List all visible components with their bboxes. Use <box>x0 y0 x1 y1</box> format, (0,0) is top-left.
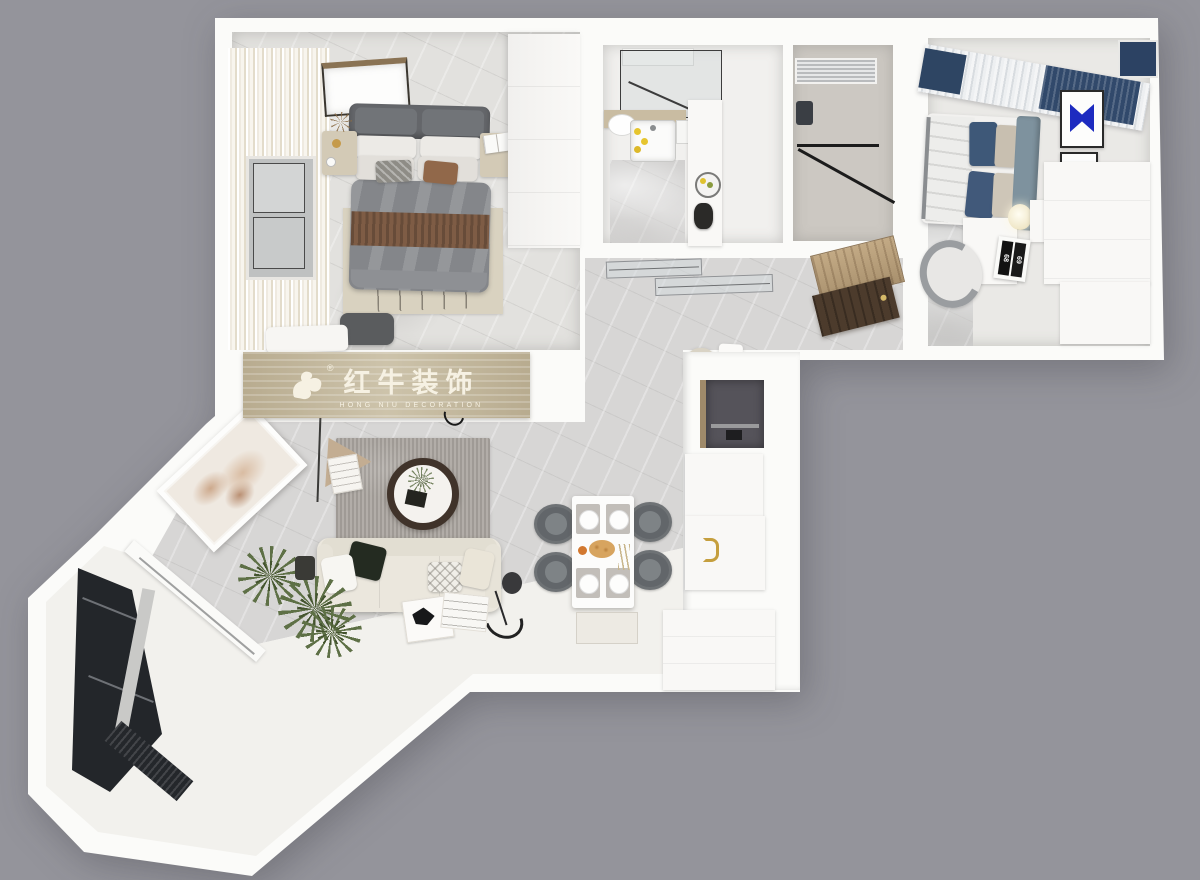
accent-pillow-checkered <box>375 160 412 184</box>
floorplan-render: 68 69 <box>0 0 1200 880</box>
dining-chair <box>628 502 672 542</box>
tv-soundbar <box>711 424 759 428</box>
bedroom2-lower-cabinet <box>1060 282 1150 344</box>
wall-art-blue-butterfly <box>1060 90 1104 148</box>
brand-logo-wall: ® 红牛装饰 HONG NIU DECORATION <box>243 352 530 418</box>
white-lounge-cushion <box>266 325 349 354</box>
registered-mark: ® <box>327 363 334 373</box>
bathroom-floor-gray-patch <box>610 160 685 243</box>
placemat <box>606 504 630 534</box>
bedroom2-cabinet <box>1044 162 1150 284</box>
book-spine-line <box>496 134 499 152</box>
curtain-navy-section <box>918 48 966 95</box>
sink <box>630 120 676 162</box>
bull-logo-icon: ® <box>290 367 330 403</box>
magazine <box>327 454 363 495</box>
orange-fruit <box>578 546 587 555</box>
plate <box>579 574 599 594</box>
poster-number: 69 <box>1014 256 1022 265</box>
brand-text-block: 红牛装饰 HONG NIU DECORATION <box>340 361 484 409</box>
tv-niche <box>706 380 764 448</box>
floor-poster <box>440 592 490 633</box>
master-bed <box>343 103 498 289</box>
table-book <box>405 489 428 508</box>
blue-bowtie-shape <box>1070 104 1094 132</box>
accent-pillow-brown <box>423 160 459 185</box>
door-track-line <box>609 266 699 270</box>
plant-pot <box>295 556 315 580</box>
bed-foot-fabric <box>351 269 487 291</box>
headboard-cushion <box>422 109 485 137</box>
hanging-garment <box>796 101 813 125</box>
door-track-line <box>658 283 770 288</box>
navy-window <box>1118 40 1158 78</box>
media-cabinet-lower <box>685 516 765 590</box>
desk-lamp <box>1008 204 1032 230</box>
window-pane <box>253 163 305 213</box>
set-top-box <box>726 430 742 440</box>
chair-seat <box>639 511 662 533</box>
tv-wood-trim <box>700 380 706 448</box>
placemat <box>576 504 600 534</box>
wardrobe <box>508 34 580 248</box>
chair-seat <box>639 559 662 581</box>
dining-table <box>572 496 634 608</box>
poster-black-shape <box>411 606 435 627</box>
sliding-glass-door <box>606 258 703 278</box>
floor-lamp-shade <box>502 572 522 594</box>
chair-seat <box>545 561 568 583</box>
bread-basket <box>589 540 615 558</box>
poster-chip: 69 <box>1011 242 1027 277</box>
sideboard <box>663 610 775 690</box>
kettle <box>694 203 713 229</box>
plate <box>579 510 599 530</box>
tv-wall-column <box>683 352 800 690</box>
window-pane <box>253 217 305 269</box>
dried-sprig <box>618 544 630 570</box>
door-handle <box>880 294 887 301</box>
faucet <box>650 125 656 131</box>
plate <box>609 510 629 530</box>
rubber-duck <box>634 128 641 135</box>
fruit <box>707 182 713 188</box>
chair-seat <box>545 513 568 535</box>
placemat <box>576 568 600 598</box>
dried-flowers <box>330 112 352 132</box>
media-cabinet-upper <box>685 454 763 516</box>
bedroom-window <box>246 156 316 280</box>
cup <box>326 157 336 167</box>
closet-roller-blind <box>795 58 877 84</box>
placemat <box>606 568 630 598</box>
sofa-pillow-diamond <box>428 562 462 592</box>
fruit <box>700 178 706 184</box>
palm-plant <box>300 606 362 658</box>
number-poster: 68 69 <box>993 236 1031 282</box>
nightstand-left <box>322 131 357 175</box>
coffee-table <box>387 458 459 530</box>
bed-throw-brown <box>351 211 490 249</box>
fruit-bowl <box>695 172 721 198</box>
brand-name-cn: 红牛装饰 <box>344 361 480 400</box>
poster-number: 68 <box>1002 254 1010 263</box>
dining-floor-mat <box>576 612 638 644</box>
dining-chair <box>628 550 672 590</box>
vase-gold <box>332 139 341 148</box>
rubber-duck <box>641 138 648 145</box>
headboard-cushion <box>355 107 418 135</box>
brand-logo: ® 红牛装饰 HONG NIU DECORATION <box>243 352 530 418</box>
clothes-rod-horizontal <box>797 144 879 147</box>
gold-handle <box>703 538 719 562</box>
bed2-navy-pillow <box>969 122 997 166</box>
rubber-duck <box>634 146 641 153</box>
apartment: 68 69 <box>0 0 1200 880</box>
plate <box>609 574 629 594</box>
